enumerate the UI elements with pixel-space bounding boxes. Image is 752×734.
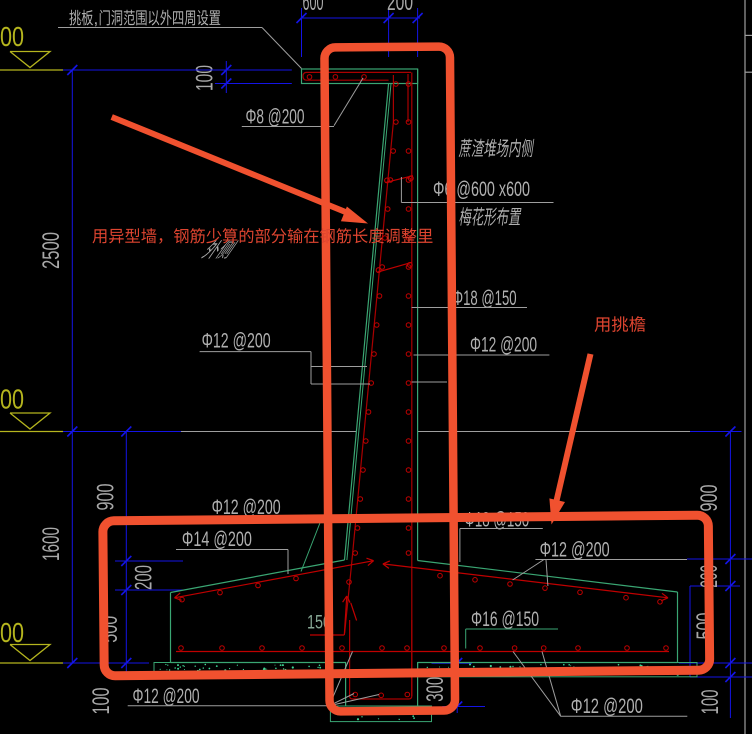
svg-text:200: 200: [131, 565, 158, 590]
svg-text:Φ12 @200: Φ12 @200: [202, 330, 271, 353]
svg-text:Φ12 @200: Φ12 @200: [571, 695, 643, 718]
svg-text:,: ,: [94, 9, 99, 28]
svg-text:100: 100: [192, 65, 219, 91]
svg-text:Φ14 @200: Φ14 @200: [182, 528, 252, 551]
svg-text:00: 00: [0, 384, 24, 415]
svg-text:Φ12 @200: Φ12 @200: [133, 685, 200, 708]
svg-text:Φ8 @200: Φ8 @200: [246, 106, 305, 129]
svg-text:1600: 1600: [38, 527, 65, 561]
svg-text:00: 00: [0, 617, 24, 648]
svg-text:Φ12 @200: Φ12 @200: [470, 333, 537, 356]
svg-text:600: 600: [303, 0, 324, 16]
svg-text:2500: 2500: [38, 232, 65, 269]
svg-text:100: 100: [697, 690, 724, 715]
svg-text:100: 100: [88, 688, 115, 715]
svg-text:900: 900: [696, 485, 723, 512]
svg-text:Φ16 @150: Φ16 @150: [471, 608, 539, 631]
svg-text:Φ12 @200: Φ12 @200: [540, 539, 610, 562]
svg-text:900: 900: [92, 484, 119, 511]
svg-text:200: 200: [387, 0, 413, 16]
svg-text:00: 00: [0, 21, 24, 52]
svg-text:Φ18 @150: Φ18 @150: [453, 287, 517, 310]
svg-text:300: 300: [422, 677, 449, 702]
